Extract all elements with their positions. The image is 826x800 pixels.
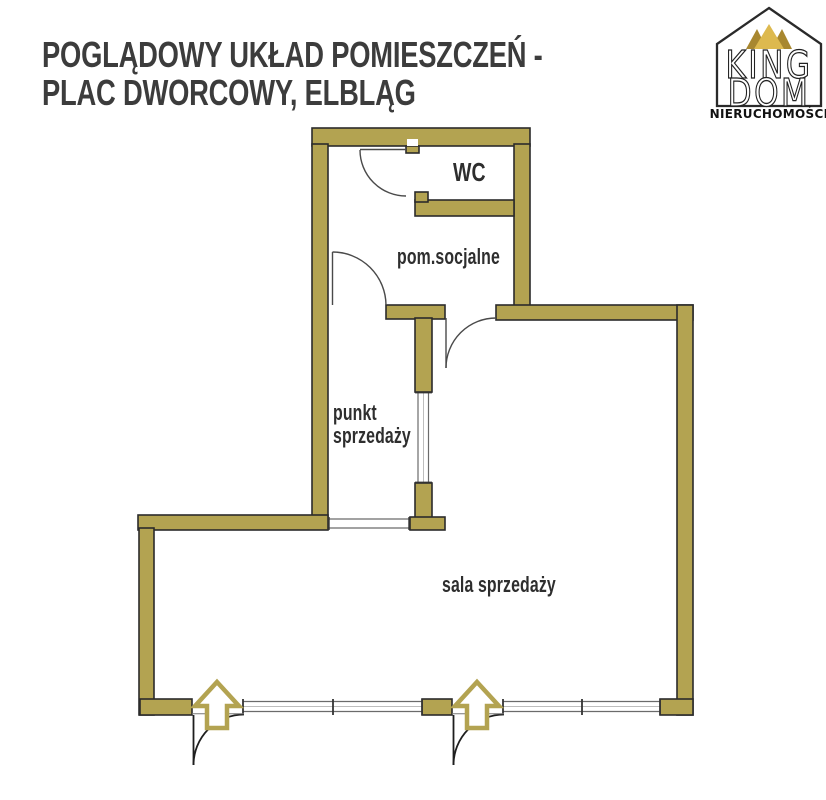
wall-bottom-left [140,699,192,715]
wall-left-upper [312,144,328,517]
wall-bottom-pier [422,699,452,715]
room-label-pom-socjalne: pom.socjalne [397,245,500,268]
wall-wc-stub [415,192,428,202]
door-pom-sala [446,318,496,368]
floor-plan [0,0,826,800]
wall-left-sala [139,528,154,715]
wall-wc-bottom [415,200,514,216]
wall-partition [386,305,445,319]
arrow-up-icon [455,682,499,728]
wall-sala-top-right [496,305,693,320]
wall-punkt-right-upper [415,318,432,392]
wall-right-upper [514,144,530,308]
arrow-up-icon [195,682,239,728]
wall-sala-top-left [138,515,328,530]
wall-punkt-foot [410,517,445,530]
door-wc [360,150,406,197]
wall-bottom-right [660,699,693,715]
windows [243,392,660,715]
door-pom-punkt [333,252,387,305]
room-label-sala-sprzedazy: sala sprzedaży [442,573,556,596]
wc-door-jamb-notch [407,139,418,146]
window-punkt-right [415,392,432,483]
wall-right [677,305,693,715]
room-label-punkt-sprzedazy: punkt sprzedaży [333,401,411,447]
window-punkt-bottom [328,517,410,530]
wall-top [312,128,530,146]
entrance-doors [194,715,505,766]
wall-punkt-right-lower [415,483,432,518]
window-bottom-b [503,699,660,715]
window-bottom-a [243,699,422,715]
room-label-wc: WC [453,161,486,184]
wall-wc-hinge-stub [406,146,419,153]
